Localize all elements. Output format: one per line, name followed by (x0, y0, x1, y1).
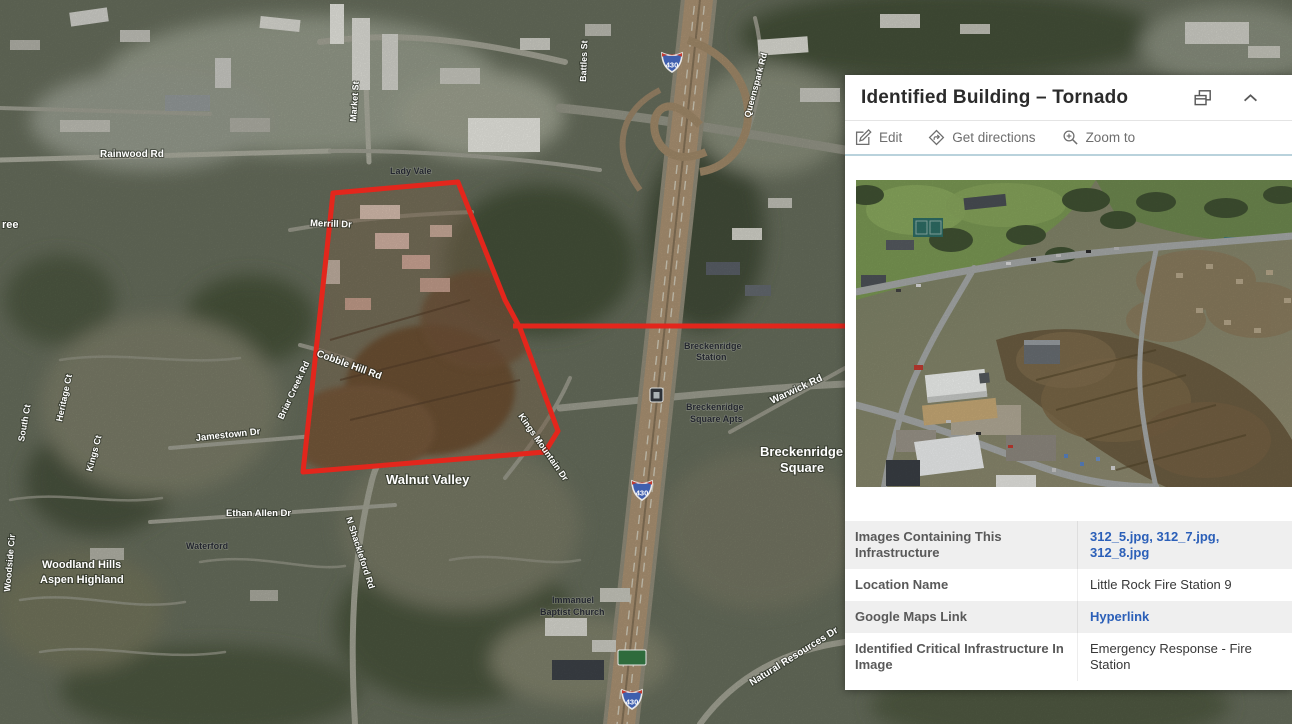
popup-title: Identified Building – Tornado (861, 87, 1193, 109)
table-row: Identified Critical Infrastructure In Im… (845, 633, 1292, 681)
exit-icon (650, 388, 663, 402)
map-road-label: ree (2, 219, 19, 231)
zoom-to-button[interactable]: Zoom to (1062, 129, 1136, 146)
map-road-label: Square (780, 460, 824, 475)
google-maps-link[interactable]: Hyperlink (1090, 609, 1149, 624)
map-poi-label: Breckenridge (686, 402, 744, 412)
map-road-label: Merrill Dr (310, 218, 352, 230)
collapse-icon[interactable] (1243, 93, 1258, 103)
directions-icon (928, 129, 945, 146)
map-poi-label: Immanuel (552, 595, 594, 605)
field-value: Little Rock Fire Station 9 (1077, 569, 1292, 601)
edit-label: Edit (879, 130, 902, 145)
dock-icon[interactable] (1193, 89, 1213, 107)
map-road-label: Battles St (578, 40, 589, 82)
svg-text:430: 430 (636, 489, 649, 498)
table-row: Google Maps Link Hyperlink (845, 601, 1292, 633)
zoom-to-label: Zoom to (1086, 130, 1136, 145)
map-road-label: Woodland Hills (42, 559, 121, 571)
map-poi-label: Square Apts (690, 414, 743, 424)
damage-photo[interactable] (856, 180, 1292, 487)
get-directions-label: Get directions (952, 130, 1035, 145)
svg-text:430: 430 (626, 698, 639, 707)
map-road-label: Ethan Allen Dr (226, 508, 291, 519)
get-directions-button[interactable]: Get directions (928, 129, 1035, 146)
map-road-label: Walnut Valley (386, 472, 470, 487)
field-label: Location Name (855, 569, 1077, 601)
map-road-label: Breckenridge (760, 444, 843, 459)
field-label: Identified Critical Infrastructure In Im… (855, 633, 1077, 681)
map-road-label: Aspen Highland (40, 574, 124, 586)
feature-popup: Identified Building – Tornado Edit (845, 75, 1292, 690)
image-links[interactable]: 312_5.jpg, 312_7.jpg, 312_8.jpg (1090, 529, 1219, 560)
popup-toolbar: Edit Get directions Zoom to (845, 121, 1292, 156)
attribute-table: Images Containing This Infrastructure 31… (845, 521, 1292, 681)
map-poi-label: Waterford (186, 541, 228, 551)
field-label: Google Maps Link (855, 601, 1077, 633)
map-poi-label: Breckenridge (684, 341, 742, 351)
field-value: Emergency Response - Fire Station (1077, 633, 1292, 681)
svg-text:430: 430 (666, 61, 679, 70)
map-road-label: Rainwood Rd (100, 149, 164, 160)
exit-sign (618, 650, 646, 665)
edit-button[interactable]: Edit (855, 129, 902, 146)
map-poi-label: Baptist Church (540, 607, 605, 617)
map-poi-label: Lady Vale (390, 166, 432, 176)
zoom-to-icon (1062, 129, 1079, 146)
popup-header: Identified Building – Tornado (845, 75, 1292, 121)
table-row: Location Name Little Rock Fire Station 9 (845, 569, 1292, 601)
map-poi-label: Station (696, 352, 727, 362)
edit-icon (855, 129, 872, 146)
table-row: Images Containing This Infrastructure 31… (845, 521, 1292, 569)
field-label: Images Containing This Infrastructure (855, 521, 1077, 569)
